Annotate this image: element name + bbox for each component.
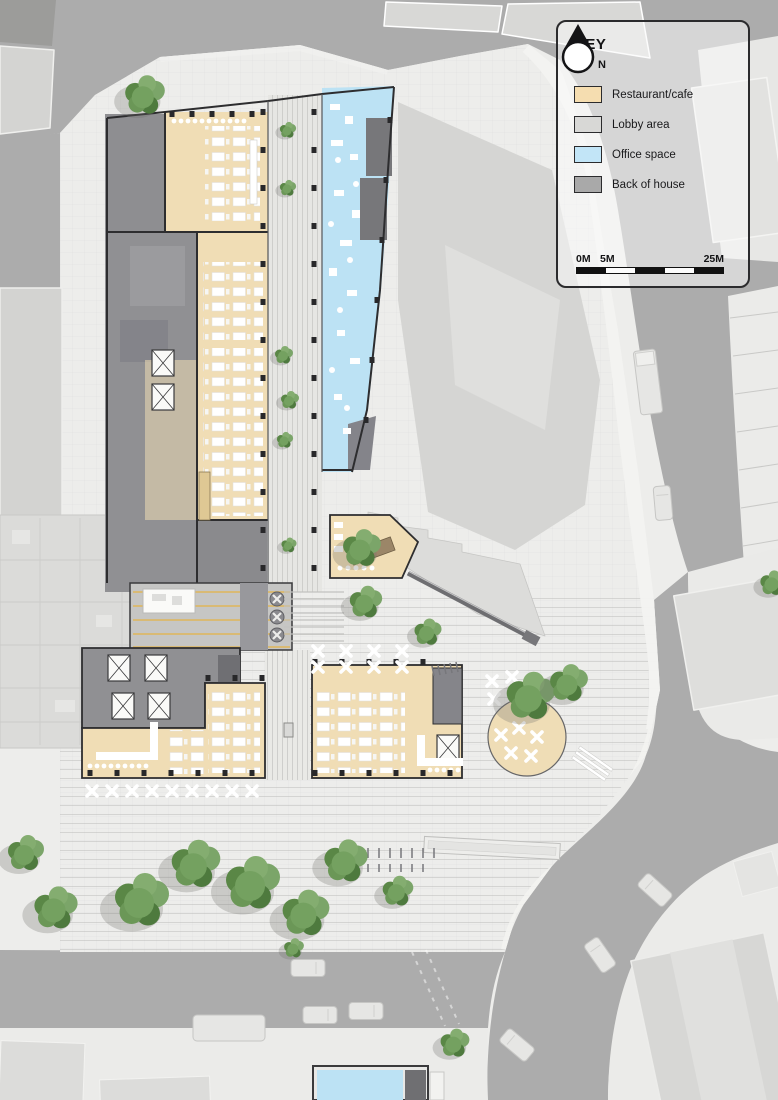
legend-item-label: Restaurant/cafe [612, 89, 693, 101]
building-southwest-2 [100, 1076, 212, 1100]
car [653, 485, 673, 520]
building-north-1 [384, 2, 502, 32]
scale-label-0m: 0M [576, 253, 591, 265]
north-arrow-icon [558, 22, 598, 74]
elevator-core [437, 735, 459, 761]
back-of-house-swatch-icon [574, 176, 602, 193]
scale-label-5m: 5M [600, 253, 615, 265]
dock-turntable [270, 592, 284, 606]
car [349, 1003, 383, 1020]
road-west-street [0, 133, 62, 292]
site-plan-map: KEY N Restaurant/cafe Lobby area Office … [0, 0, 778, 1100]
legend-item-lobby: Lobby area [574, 116, 734, 133]
legend-item-restaurant: Restaurant/cafe [574, 86, 734, 103]
restaurant-swatch-icon [574, 86, 602, 103]
legend-item-label: Lobby area [612, 119, 670, 131]
dock-turntable [270, 628, 284, 642]
walkway-bench [284, 723, 293, 737]
dock-turntable [270, 610, 284, 624]
legend-item-back-of-house: Back of house [574, 176, 734, 193]
elevator-core [148, 693, 170, 719]
scale-bar-labels: 0M 5M 25M [576, 253, 724, 267]
legend-item-office: Office space [574, 146, 734, 163]
elevator-core [145, 655, 167, 681]
north-label: N [598, 59, 606, 71]
legend-item-label: Office space [612, 149, 676, 161]
building-west-mid [0, 288, 62, 520]
building-pool-south [313, 1066, 444, 1100]
scale-segment [665, 268, 694, 273]
car [303, 1007, 337, 1024]
loading-dock [130, 583, 292, 650]
building-northwest-corner [0, 0, 56, 46]
map-key-panel: KEY N Restaurant/cafe Lobby area Office … [556, 20, 750, 288]
scale-bar: 0M 5M 25M [576, 253, 724, 274]
office-swatch-icon [574, 146, 602, 163]
elevator-core [112, 693, 134, 719]
bus [193, 1015, 265, 1041]
elevator-core [152, 384, 174, 410]
legend-item-label: Back of house [612, 179, 685, 191]
elevator-core [152, 350, 174, 376]
building-southwest-1 [0, 1041, 85, 1100]
scale-segment [577, 268, 606, 273]
building-west-top [0, 46, 54, 134]
scale-label-25m: 25M [704, 253, 724, 265]
scale-bar-segments [576, 267, 724, 274]
scale-segment [694, 268, 723, 273]
scale-segment [635, 268, 664, 273]
key-title: KEY [574, 36, 734, 53]
elevator-core [108, 655, 130, 681]
lobby-swatch-icon [574, 116, 602, 133]
legend-items: Restaurant/cafe Lobby area Office space … [574, 86, 734, 193]
scale-segment [606, 268, 635, 273]
north-compass: N [580, 59, 624, 72]
car [291, 960, 325, 977]
